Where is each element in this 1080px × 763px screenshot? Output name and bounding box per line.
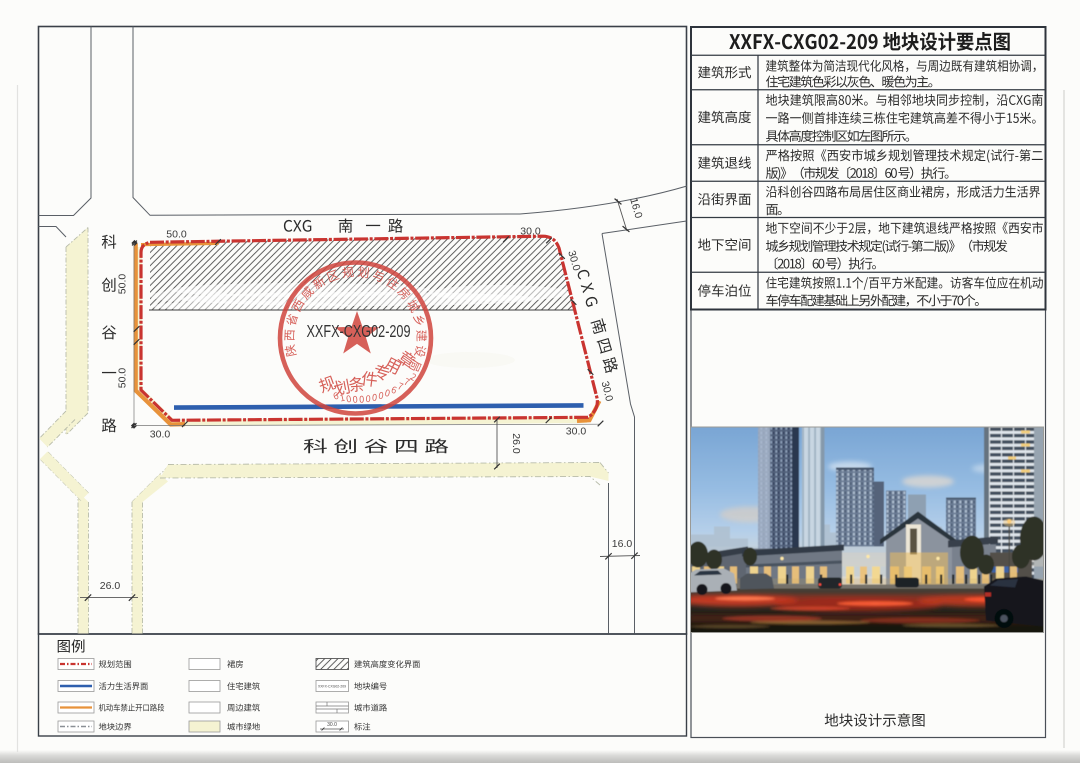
svg-text:16.0: 16.0 — [612, 538, 633, 550]
svg-text:50.0: 50.0 — [166, 229, 187, 241]
svg-text:XXFX-CXG02-209: XXFX-CXG02-209 — [318, 684, 347, 689]
svg-text:30.0: 30.0 — [150, 429, 171, 441]
svg-text:26.0: 26.0 — [510, 433, 522, 454]
svg-text:XXFX-CXG02-209: XXFX-CXG02-209 — [307, 321, 411, 341]
svg-text:30.0: 30.0 — [520, 226, 541, 238]
svg-text:26.0: 26.0 — [100, 580, 121, 592]
svg-text:50.0: 50.0 — [117, 274, 129, 295]
svg-text:30.0: 30.0 — [327, 722, 337, 728]
svg-text:30.0: 30.0 — [566, 426, 587, 438]
svg-text:50.0: 50.0 — [117, 368, 129, 389]
